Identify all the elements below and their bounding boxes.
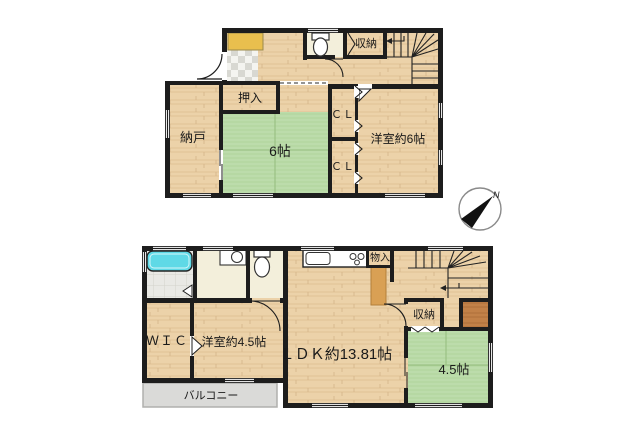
- room-label-cl-top: ＣＬ: [331, 109, 355, 121]
- room-label-yoshitsu6: 洋室約6帖: [371, 131, 426, 146]
- entrance-door-arc: [197, 52, 227, 80]
- room-label-shuno-lower: 収納: [413, 308, 435, 321]
- room-label-cl-bottom: ＣＬ: [331, 161, 355, 173]
- kitchen-sink-icon: [306, 253, 330, 265]
- room-label-yoshitsu45: 洋室約4.5帖: [202, 334, 267, 349]
- room-label-wic: ＷＩＣ: [146, 333, 188, 348]
- upper-floor-plan: 収納 押入 納戸 6帖 ＣＬ ＣＬ 洋室約6帖: [165, 28, 443, 198]
- room-label-tatami6: 6帖: [269, 143, 291, 159]
- toilet-icon-lower: [254, 250, 270, 277]
- shoe-cabinet: [228, 33, 263, 50]
- room-label-ldk: ＬＤＫ約13.81帖: [280, 346, 393, 363]
- genkan-tile: [227, 50, 258, 81]
- balcony-label: バルコニー: [184, 389, 239, 402]
- nando-sliding-door: [219, 150, 223, 180]
- floorplan-image: 収納 押入 納戸 6帖 ＣＬ ＣＬ 洋室約6帖 N: [0, 0, 640, 437]
- washbasin-icon: [220, 249, 246, 265]
- room-label-nando: 納戸: [180, 130, 206, 145]
- room-label-tatami45: 4.5帖: [438, 362, 469, 377]
- toilet-icon-upper: [312, 33, 329, 56]
- floorplan-canvas: 収納 押入 納戸 6帖 ＣＬ ＣＬ 洋室約6帖 N: [0, 0, 640, 437]
- compass-north-label: N: [493, 190, 500, 200]
- kitchen-cupboard: [371, 267, 386, 305]
- room-label-oshiire: 押入: [238, 91, 262, 105]
- compass-rose: N: [459, 188, 501, 230]
- room-label-monoire: 物入: [370, 251, 390, 264]
- room-label-shuno-upper: 収納: [355, 37, 377, 50]
- dark-wood-closet: [463, 302, 488, 327]
- shuno-bifold-door-lower: [411, 326, 439, 332]
- open-doorway-dashes: [280, 81, 328, 85]
- lower-floor-plan: 物入 収納 ＷＩＣ 洋室約4.5帖 ＬＤＫ約13.81帖 4.5帖 バルコニー: [142, 246, 493, 408]
- kitchen-counter: [303, 250, 368, 267]
